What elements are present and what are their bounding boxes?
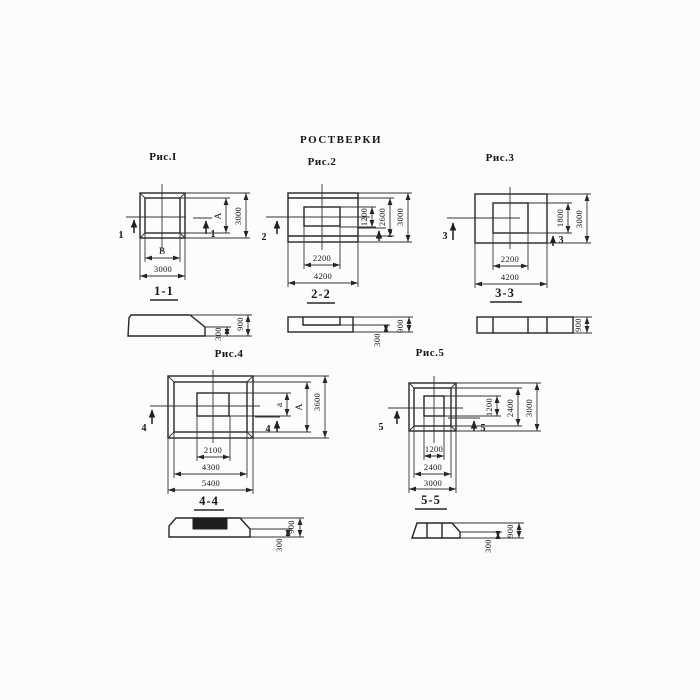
figure-5-plan: Рис.5 5 5 1200 2400 3000 1200 2400 3000 … <box>379 347 542 509</box>
section-title: 5-5 <box>421 493 441 507</box>
plan-outline-outer <box>475 194 547 243</box>
dim-text: 300 <box>483 539 493 553</box>
dim-text: 3000 <box>154 264 172 274</box>
extension-lines <box>409 383 541 493</box>
sheet-title: РОСТВЕРКИ <box>300 134 382 146</box>
drawing-canvas: РОСТВЕРКИ Рис.I 1 1 А 3000 В 3000 1-1 30… <box>0 0 700 700</box>
figure-1-plan: Рис.I 1 1 А 3000 В 3000 1-1 <box>119 151 251 300</box>
plan-outline-inner <box>145 198 180 233</box>
plan-outline-outer <box>168 376 253 438</box>
dim-text: 900 <box>235 317 245 331</box>
cut-mark-label: 5 <box>481 423 486 434</box>
section-profile <box>477 317 573 333</box>
section-recess <box>303 317 340 325</box>
figure-4-plan: Рис.4 4 4 а А 3600 2100 4300 5400 4-4 <box>142 348 330 510</box>
dim-text: В <box>159 247 165 257</box>
cut-mark-label: 5 <box>379 422 384 433</box>
dim-text: 2400 <box>505 399 515 417</box>
dim-text: 5400 <box>202 478 220 488</box>
extension-lines <box>168 376 329 494</box>
section-joints <box>493 317 547 333</box>
section-recess-filled <box>193 518 227 529</box>
dim-text: 4300 <box>202 462 220 472</box>
section-2-2: 300 900 <box>288 317 413 347</box>
dim-text: 4200 <box>314 271 332 281</box>
dim-text: 3000 <box>574 210 584 228</box>
dim-text: 1200 <box>425 444 443 454</box>
section-title: 4-4 <box>199 494 219 508</box>
plan-outline-frame <box>414 388 451 426</box>
section-title: 3-3 <box>495 286 515 300</box>
dim-text: 2100 <box>204 445 222 455</box>
centerlines <box>126 184 212 252</box>
figure-4-label: Рис.4 <box>215 348 244 360</box>
section-profile <box>128 315 205 336</box>
figure-3-label: Рис.3 <box>486 152 515 164</box>
section-title: 2-2 <box>311 287 331 301</box>
dim-text: 3000 <box>424 478 442 488</box>
dim-text: 2600 <box>377 208 387 226</box>
plan-outline-outer <box>288 193 358 242</box>
section-title: 1-1 <box>154 284 174 298</box>
dim-text: 900 <box>395 319 405 333</box>
dim-text: 2200 <box>313 253 331 263</box>
dim-text: 300 <box>213 327 223 341</box>
dim-text: 900 <box>505 524 515 538</box>
cut-mark-label: 4 <box>266 424 271 435</box>
centerlines <box>388 376 480 443</box>
plan-outline-outer <box>140 193 185 238</box>
cut-mark-label: 4 <box>142 423 147 434</box>
section-1-1: 300 900 <box>128 315 252 341</box>
corner-bevels <box>168 376 253 438</box>
dim-text: 1800 <box>555 209 565 227</box>
cut-mark-label: 3 <box>559 235 564 246</box>
corner-bevels <box>140 193 185 238</box>
dim-text: 900 <box>286 520 296 534</box>
figure-5-label: Рис.5 <box>416 347 445 359</box>
dim-text: 4200 <box>501 272 519 282</box>
section-joints <box>427 523 442 538</box>
dim-text: а <box>275 402 285 407</box>
corner-bevels <box>409 383 456 431</box>
dim-text: 3000 <box>395 208 405 226</box>
figure-3-plan: Рис.3 3 3 1800 3000 2200 4200 3-3 <box>443 152 592 302</box>
dim-text: 2400 <box>424 462 442 472</box>
dim-text: 1200 <box>359 208 369 226</box>
dim-text: А <box>214 212 224 219</box>
figure-2-label: Рис.2 <box>308 156 337 168</box>
section-4-4: 300 900 <box>169 518 304 552</box>
cut-mark-label: 1 <box>119 230 124 241</box>
dim-text: 900 <box>573 318 583 332</box>
dim-text: 3000 <box>524 399 534 417</box>
section-5-5: 300 900 <box>412 523 524 553</box>
centerlines <box>447 187 558 249</box>
section-3-3: 900 <box>477 317 592 333</box>
plan-outline-outer <box>409 383 456 431</box>
section-profile <box>412 523 460 538</box>
drawing-sheet: РОСТВЕРКИ Рис.I 1 1 А 3000 В 3000 1-1 30… <box>0 0 700 700</box>
figure-1-label: Рис.I <box>149 151 176 163</box>
dim-text: 2200 <box>501 254 519 264</box>
cut-mark-label: 2 <box>262 232 267 243</box>
dim-text: 3000 <box>233 207 243 225</box>
dim-text: 300 <box>274 538 284 552</box>
dim-text: 300 <box>372 333 382 347</box>
plan-outline-frame <box>174 382 247 432</box>
dim-text: А <box>295 403 305 410</box>
dim-text: 3600 <box>312 393 322 411</box>
dim-text: 1200 <box>484 398 494 416</box>
cut-mark-label: 3 <box>443 231 448 242</box>
figure-2-plan: Рис.2 2 2 1200 2600 3000 2200 4200 2-2 <box>262 156 413 303</box>
